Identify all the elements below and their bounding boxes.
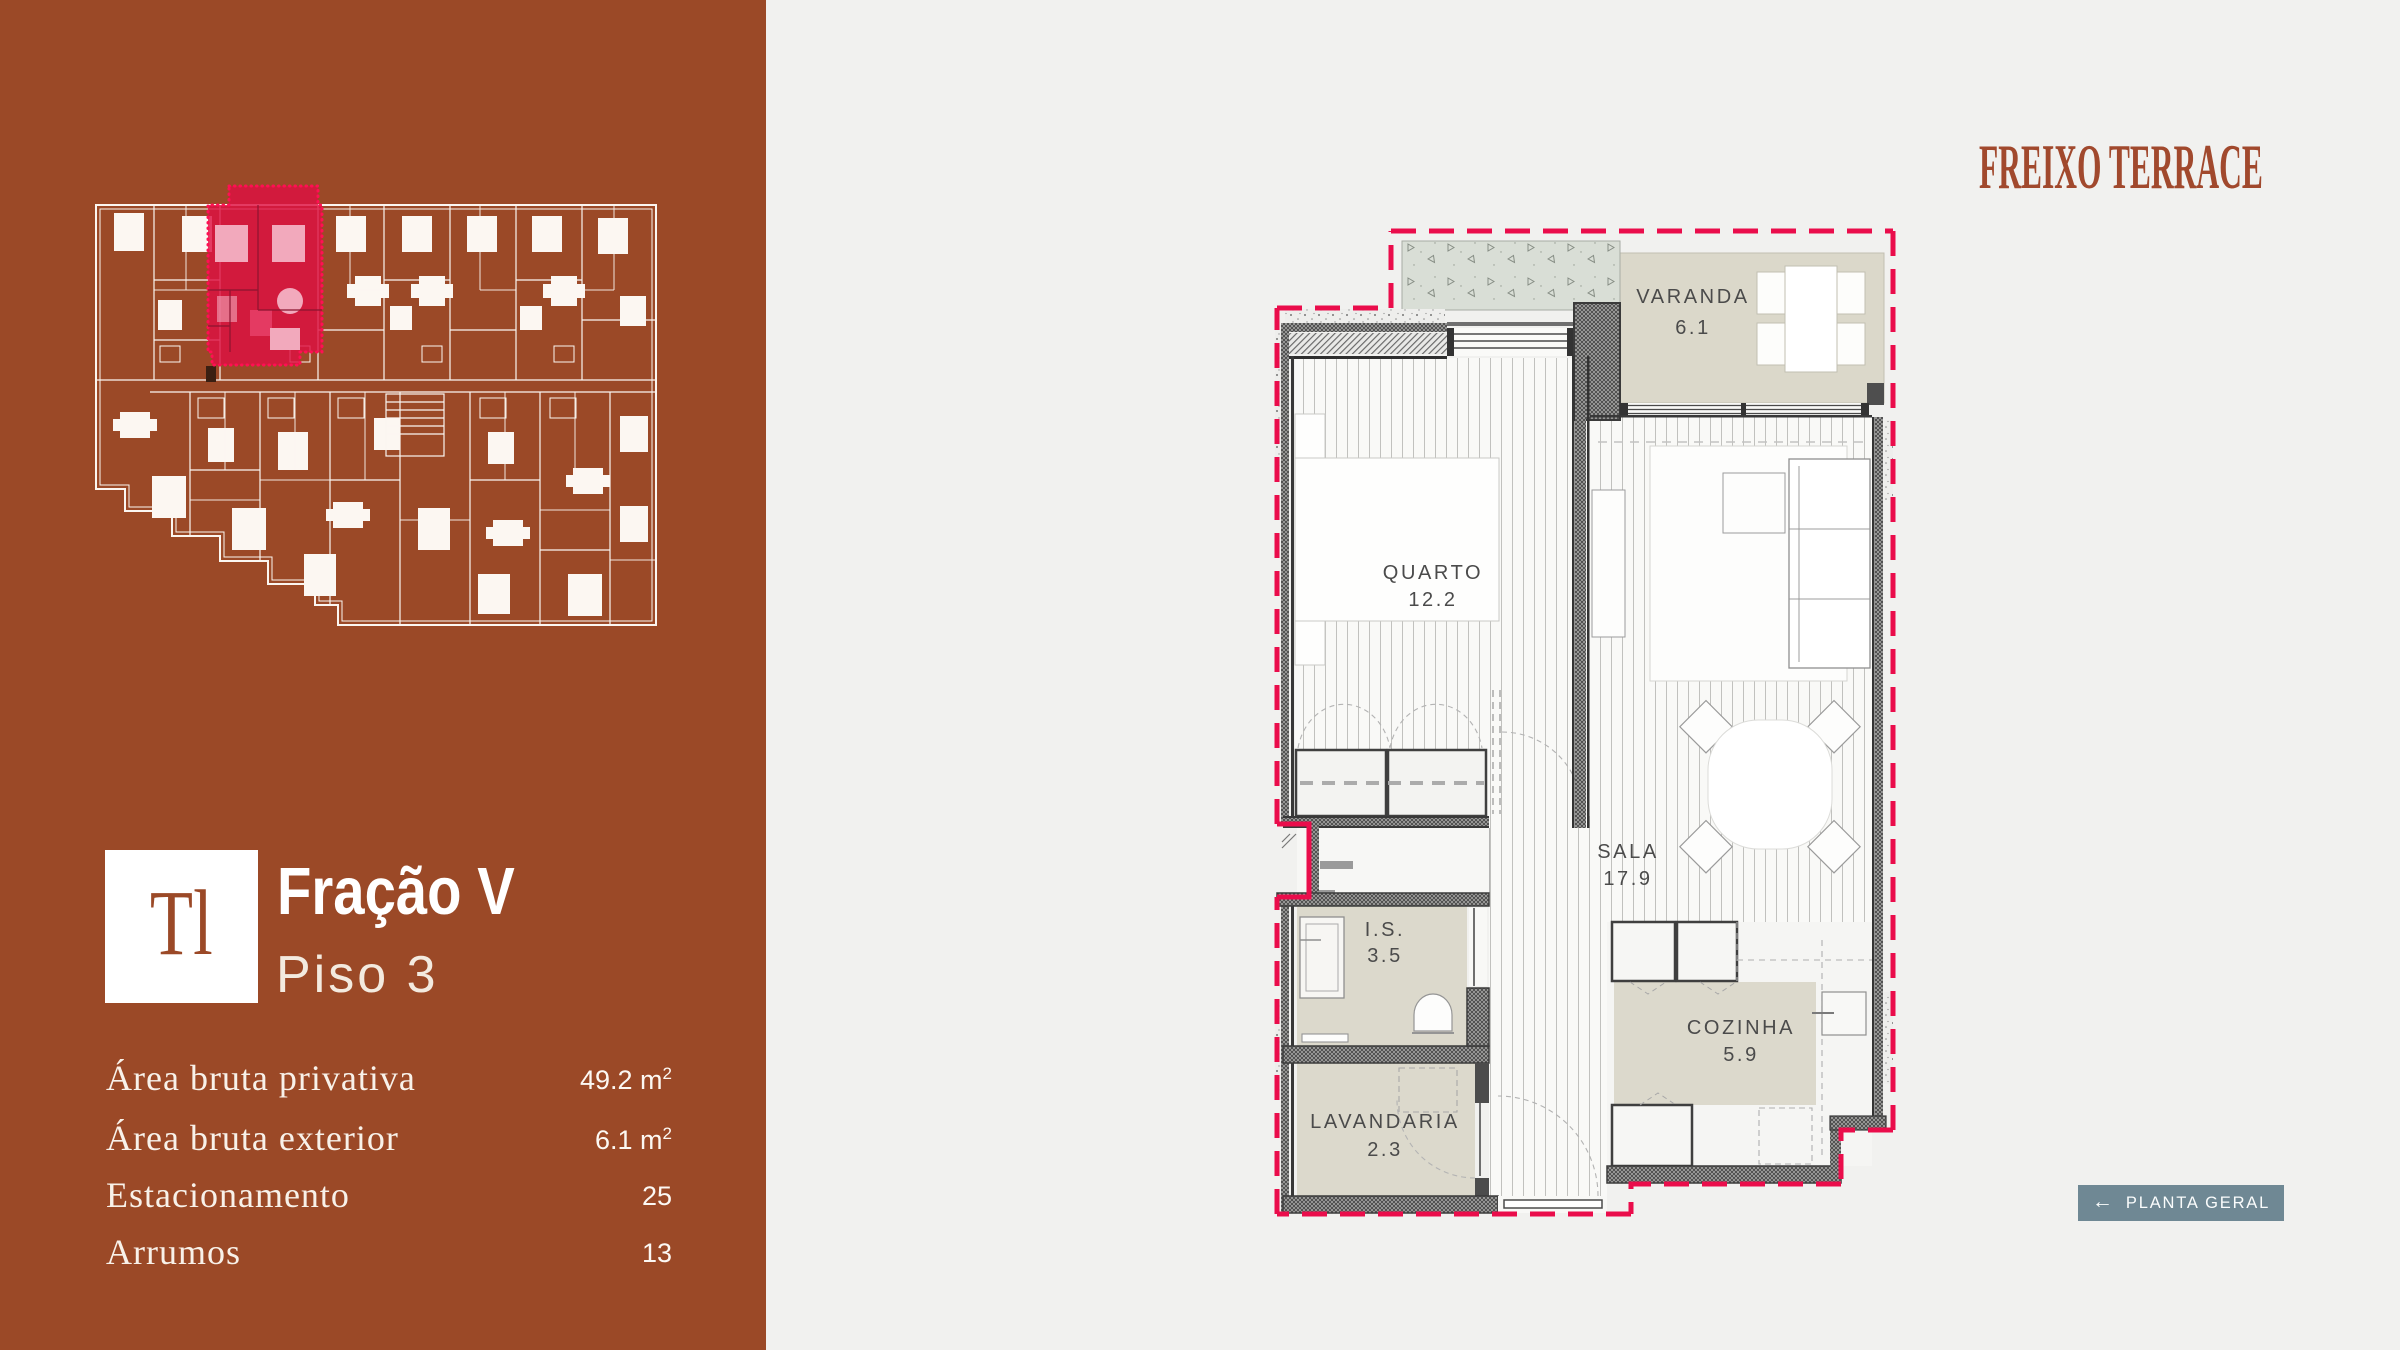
svg-text:2.3: 2.3 <box>1367 1139 1403 1161</box>
svg-text:SALA: SALA <box>1597 841 1659 863</box>
svg-text:I.S.: I.S. <box>1365 919 1405 941</box>
svg-text:LAVANDARIA: LAVANDARIA <box>1310 1111 1460 1133</box>
svg-text:3.5: 3.5 <box>1367 945 1403 967</box>
svg-text:QUARTO: QUARTO <box>1383 562 1483 584</box>
svg-text:12.2: 12.2 <box>1408 589 1457 611</box>
svg-text:17.9: 17.9 <box>1603 868 1652 890</box>
svg-text:COZINHA: COZINHA <box>1687 1017 1795 1039</box>
svg-text:5.9: 5.9 <box>1723 1044 1759 1066</box>
svg-text:6.1: 6.1 <box>1675 317 1711 339</box>
svg-text:VARANDA: VARANDA <box>1636 286 1749 308</box>
